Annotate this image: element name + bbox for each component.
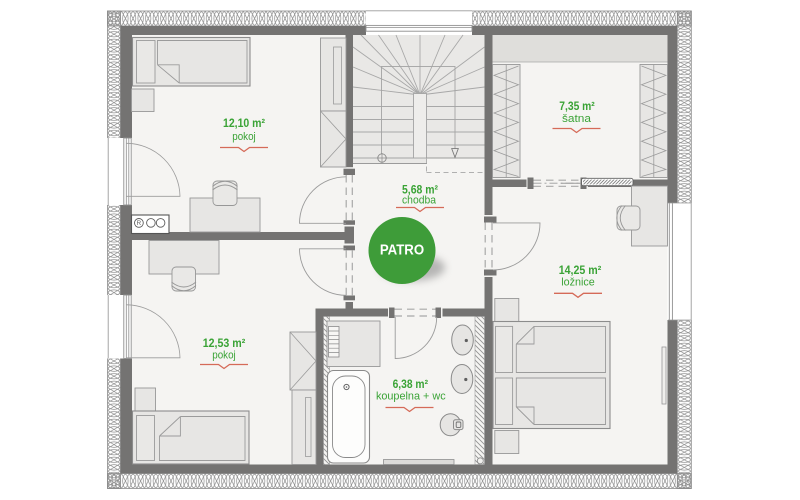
svg-text:14,25 m²: 14,25 m²: [559, 263, 602, 277]
svg-text:12,10 m²: 12,10 m²: [223, 116, 265, 130]
svg-text:12,53 m²: 12,53 m²: [203, 336, 246, 350]
svg-text:PATRO: PATRO: [380, 243, 424, 259]
svg-text:7,35 m²: 7,35 m²: [559, 99, 595, 113]
svg-text:chodba: chodba: [402, 195, 437, 207]
svg-text:koupelna + wc: koupelna + wc: [376, 391, 446, 403]
svg-text:R: R: [137, 220, 142, 227]
svg-text:pokoj: pokoj: [232, 131, 256, 143]
svg-text:6,38 m²: 6,38 m²: [393, 377, 428, 391]
svg-text:ložnice: ložnice: [561, 277, 595, 289]
svg-text:pokoj: pokoj: [212, 350, 236, 362]
svg-text:šatna: šatna: [562, 113, 592, 125]
